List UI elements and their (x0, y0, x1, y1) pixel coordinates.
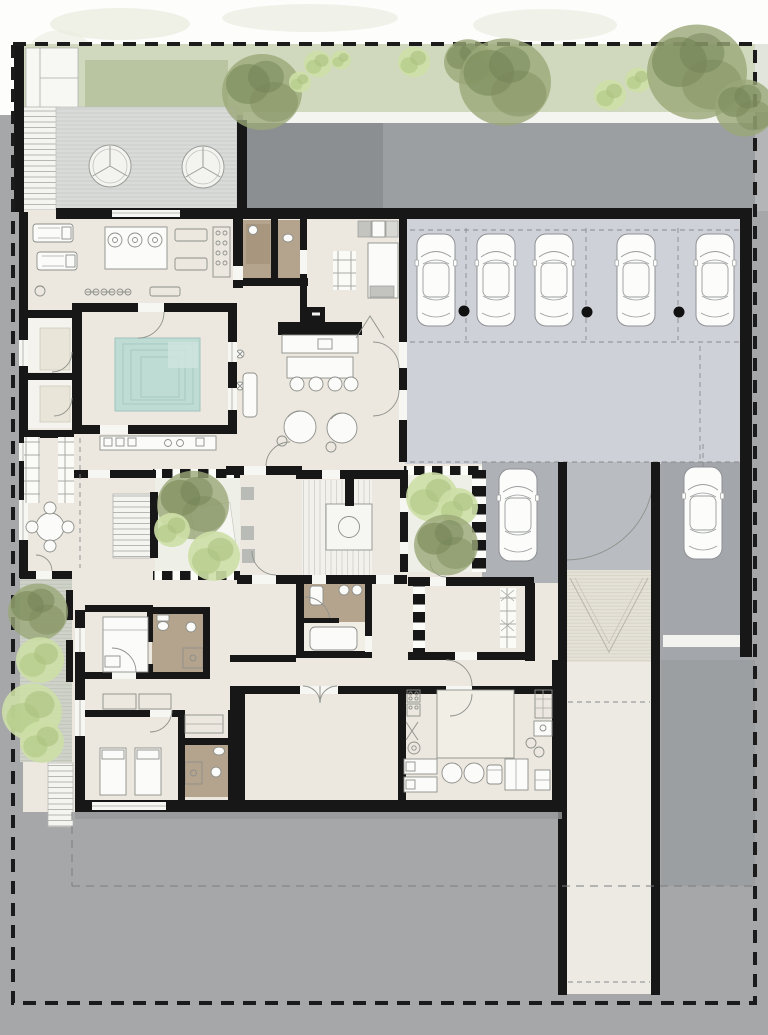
garden-stair (48, 763, 73, 827)
bath-bedroom-b (180, 743, 230, 797)
dining-chair (344, 377, 358, 391)
garage-column (674, 307, 685, 318)
round-table (36, 513, 64, 541)
lounge-armchair (327, 413, 357, 443)
garage-column (459, 306, 470, 317)
bed-single (100, 748, 126, 795)
crossing-strip (663, 635, 745, 647)
dark-roof-terrace (243, 123, 383, 211)
bed-single (135, 748, 161, 795)
floor-plan-drawing (0, 0, 768, 1035)
garage-column (582, 307, 593, 318)
sofa (243, 373, 257, 417)
parked-car (615, 234, 657, 326)
bed-double (103, 617, 148, 672)
round-table (442, 763, 462, 783)
work-table (404, 759, 437, 774)
floor-plan-sheet (0, 0, 768, 1035)
deck-lounge-chair (89, 145, 131, 187)
dining-table (287, 357, 353, 378)
parked-car (533, 234, 575, 326)
court-car (497, 469, 539, 561)
kitchen-island (282, 335, 358, 353)
parked-car (475, 234, 517, 326)
main-stair (113, 494, 152, 558)
garage (405, 219, 748, 464)
timber-deck (56, 107, 237, 213)
court-car (682, 467, 724, 559)
dining-chair (290, 377, 304, 391)
prep-island (437, 690, 514, 758)
dining-chair (328, 377, 342, 391)
stair-hall (302, 480, 372, 575)
work-table (404, 777, 437, 792)
parked-car (415, 234, 457, 326)
parked-car (694, 234, 736, 326)
round-table (464, 763, 484, 783)
deck-lounge-chair (182, 146, 224, 188)
building-shadow (75, 812, 562, 819)
dining-chair (309, 377, 323, 391)
bath-bedroom-a (152, 613, 205, 673)
access-road (243, 112, 768, 211)
